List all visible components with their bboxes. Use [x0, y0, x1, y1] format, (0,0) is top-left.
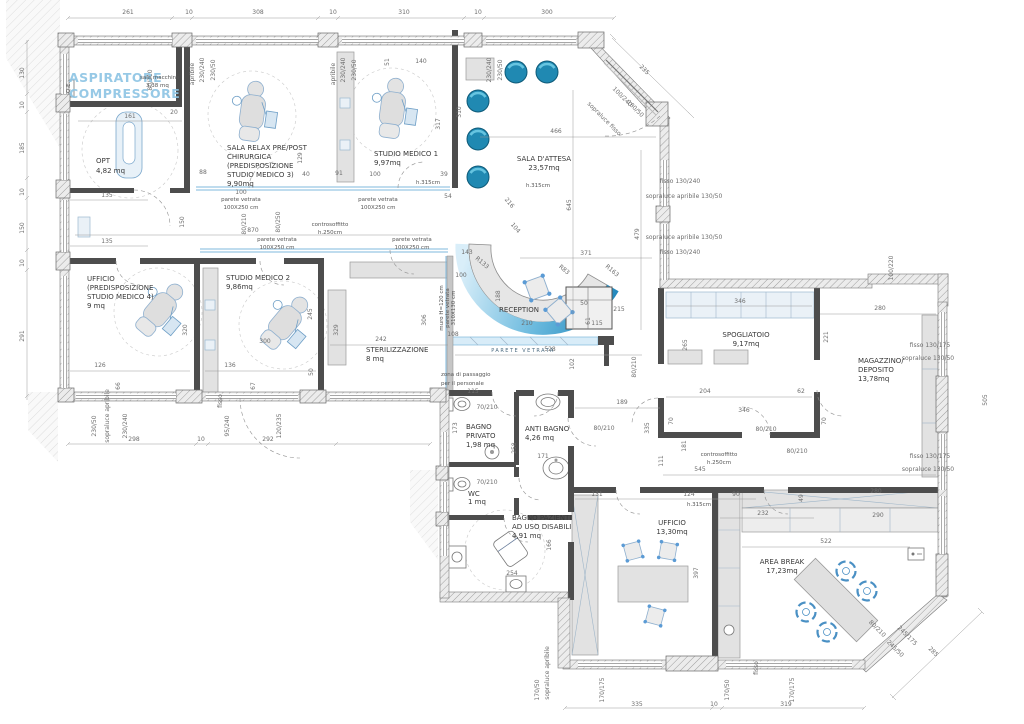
dim-label: 479 [634, 228, 641, 240]
waiting-chair [467, 90, 489, 112]
dim-label: 80/210 [786, 448, 807, 455]
room-label-ufficio2: UFFICIO [658, 519, 686, 527]
dim-label: 230/240 [199, 57, 206, 82]
room-area-sala-relax: 9,90mq [227, 180, 254, 188]
room-label-opt: OPT [96, 157, 111, 165]
height-note: h.315cm [526, 183, 550, 189]
dim-label: 397 [693, 567, 700, 579]
height-note: h.315cm [416, 180, 440, 186]
dim-label: 140 [415, 58, 427, 65]
dim-label: 70/210 [476, 404, 497, 411]
dim-label: 189 [616, 399, 628, 406]
room-area-spogliatoio: 9,17mq [733, 340, 760, 348]
room-area-area-break: 17,23mq [766, 567, 797, 575]
break-chair [818, 623, 837, 642]
room-label-sterilizzazione: STERILIZZAZIONE [366, 346, 428, 354]
dim-label: 221 [823, 331, 830, 343]
dim-label: 171 [537, 453, 549, 460]
dim-label: 290 [872, 512, 884, 519]
dim-label: 230/50 [351, 59, 358, 80]
dim-label: 50 [580, 300, 588, 307]
parete-vetrata-note: 100X250 cm [395, 245, 430, 251]
room-label-ufficio-predisp: UFFICIO [87, 275, 115, 283]
dim-label: 310 [456, 106, 463, 118]
dim-label: 49 [798, 494, 805, 502]
dim-label: 245 [307, 308, 314, 320]
floor-plan: 2611030810310103001301018510150102912981… [0, 0, 1024, 724]
dim-label: 10 [19, 188, 26, 196]
dim-label: 310 [398, 9, 410, 16]
dim-label: 108 [447, 331, 459, 338]
dim-label: 235 [638, 63, 651, 76]
dim-label: 242 [375, 336, 387, 343]
dim-label: sopraluce apribile [104, 389, 111, 443]
waiting-chair [505, 61, 527, 83]
room-label-sala-relax: SALA RELAX PRE/POST [227, 144, 308, 152]
room-label-area-break: AREA BREAK [760, 558, 805, 566]
dim-label: 10 [329, 9, 337, 16]
break-chair [797, 603, 816, 622]
bench [668, 350, 702, 364]
window [442, 432, 448, 556]
dim-label: 120/235 [276, 413, 283, 438]
dim-label: 80/250 [275, 211, 282, 232]
dim-label: sopraluce apribile 130/50 [646, 234, 723, 241]
room-area-anti-bagno: 4,26 mq [525, 434, 554, 442]
dim-label: 130 [19, 67, 26, 79]
room-area-bagno-pazienti: 4,91 mq [512, 532, 541, 540]
parete-vetrata-note: 100X250 cm [224, 205, 259, 211]
dim-label: fisso 130/175 [910, 342, 951, 349]
muro-note: 310X130 cm [451, 291, 457, 326]
dim-label: 170/50 [724, 679, 731, 700]
dim-label: 308 [252, 9, 264, 16]
dim-label: 298 [128, 436, 140, 443]
bathroom-fixtures [446, 394, 569, 592]
dim-label: 70 [668, 417, 675, 425]
room-label-anti-bagno: ANTI BAGNO [525, 425, 570, 433]
dim-label: 70 [821, 417, 828, 425]
room-label-magazzino: DEPOSITO [858, 366, 894, 374]
dim-label: 210 [521, 320, 533, 327]
dim-label: 10 [474, 9, 482, 16]
dim-label: 10 [19, 259, 26, 267]
office-table [618, 566, 688, 602]
dim-label: 870 [247, 227, 259, 234]
dim-label: 258 [511, 442, 518, 454]
room-area-bagno-privato: 1,98 mq [466, 441, 495, 449]
dim-label: 522 [820, 538, 832, 545]
dim-label: 80/210 [755, 426, 776, 433]
dim-label: 215 [613, 306, 625, 313]
dim-label: 505 [982, 394, 989, 406]
dim-label: 170/50 [534, 679, 541, 700]
dim-label: 80/210 [867, 619, 887, 639]
dim-label: 20 [170, 109, 178, 116]
dim-label: sopraluce 130/50 [902, 355, 954, 362]
dim-label: 50 [308, 368, 315, 376]
dim-label: 371 [580, 250, 592, 257]
room-area-wc: 1 mq [468, 498, 486, 506]
dim-label: 261 [122, 9, 134, 16]
room-label-studio2: STUDIO MEDICO 2 [226, 274, 290, 282]
room-area-opt: 4,82 mq [96, 167, 125, 175]
dim-label: 129 [297, 152, 304, 164]
dim-label: fisso 130/240 [660, 249, 701, 256]
dim-label: 10 [197, 436, 205, 443]
room-label-bagno-pazienti: AD USO DISABILI [512, 523, 571, 531]
dim-label: 317 [435, 118, 442, 130]
dim-label: 90 [732, 491, 740, 498]
room-label-studio1: STUDIO MEDICO 1 [374, 150, 438, 158]
dim-label: 54 [444, 193, 452, 200]
dim-label: 166 [546, 539, 553, 551]
dim-label: 230/50 [91, 415, 98, 436]
qe-label: Q.E. [66, 81, 72, 93]
height-note: h.315cm [687, 502, 711, 508]
bench [714, 350, 748, 364]
dim-label: fisso [217, 394, 224, 408]
cabinet [78, 217, 90, 237]
dim-label: 124 [683, 491, 695, 498]
waiting-chair [467, 166, 489, 188]
dim-label: 115 [591, 320, 603, 327]
dim-label: 170/175 [789, 677, 796, 702]
dim-label: fisso 130/175 [910, 453, 951, 460]
dim-label: 280 [870, 488, 882, 495]
dim-label: 66 [115, 382, 122, 390]
dim-label: 173 [452, 422, 459, 434]
dim-label: 67 [250, 382, 257, 390]
parete-vetrata-note: parete vetrata [358, 197, 398, 203]
locker-cabinets [666, 292, 814, 318]
dim-label: 95/240 [224, 415, 231, 436]
dim-label: 62 [797, 388, 805, 395]
dim-label: 10 [710, 701, 718, 708]
dim-label: 204 [699, 388, 711, 395]
room-area-studio2: 9,86mq [226, 283, 253, 291]
dim-label: 545 [694, 466, 706, 473]
room-label-reception: RECEPTION [499, 306, 539, 314]
dim-label: 335 [644, 422, 651, 434]
dim-label: 232 [757, 510, 769, 517]
controsoffitto-note: controsoffitto [312, 222, 349, 228]
break-chair [837, 562, 856, 581]
room-label-spogliatoio: SPOGLIATOIO [722, 331, 770, 339]
dim-label: 150 [19, 222, 26, 234]
room-label-sala-relax: STUDIO MEDICO 3) [227, 171, 294, 179]
waiting-chair [536, 61, 558, 83]
sala-macchine-sub: 3,38 mq [146, 83, 169, 89]
dim-label: 265 [682, 339, 689, 351]
dim-label: 40 [302, 171, 310, 178]
parete-vetrata-note: parete vetrata [257, 237, 297, 243]
dim-label: 100 [455, 272, 467, 279]
office-chair [657, 540, 680, 563]
dim-label: 346 [738, 407, 750, 414]
dim-label: 280 [874, 305, 886, 312]
dim-label: 135 [101, 192, 113, 199]
dim-label: 115 [467, 388, 479, 395]
dim-label: 216 [503, 196, 516, 209]
room-area-studio1: 9,97mq [374, 159, 401, 167]
parete-vetrata-note: parete vetrata [221, 197, 261, 203]
dim-label: sopraluce apribile 130/50 [646, 193, 723, 200]
dim-label: 285 [927, 645, 940, 658]
dim-label: 291 [19, 330, 26, 342]
dim-label: 230/240 [486, 57, 493, 82]
cabinet [203, 268, 218, 393]
dim-label: sopraluce 130/50 [902, 466, 954, 473]
dim-label: 300 [259, 338, 271, 345]
dental-chair [227, 78, 281, 144]
dim-label: 104 [509, 221, 522, 234]
dim-label: 100 [235, 189, 247, 196]
dim-label: 51 [384, 58, 391, 66]
dim-label: fisso [753, 661, 760, 675]
dim-label: 230/50 [210, 59, 217, 80]
dim-label: 230/50 [497, 59, 504, 80]
office-wardrobe [572, 495, 598, 655]
parete-vetrata-caps: PARETE VETRATA [491, 348, 555, 354]
dim-label: 80/210 [631, 356, 638, 377]
dim-label: sopraluce fisso [586, 101, 623, 138]
room-label-sala-attesa: SALA D'ATTESA [517, 155, 571, 163]
dim-label: 100/220 [888, 255, 895, 280]
room-area-magazzino: 13,78mq [858, 375, 889, 383]
parete-vetrata-note: 100X250 cm [260, 245, 295, 251]
room-label-sala-relax: CHIRURGICA [227, 153, 271, 161]
dim-label: 91 [335, 170, 343, 177]
room-area-ufficio-predisp: 9 mq [87, 302, 105, 310]
sala-macchine-sub: sala macchine [140, 75, 180, 81]
dim-label: 161 [124, 113, 136, 120]
room-label-wc: WC [468, 490, 480, 498]
dim-label: R163 [604, 263, 621, 279]
break-chair [858, 582, 877, 601]
office-chair [643, 604, 667, 628]
dim-label: 70/210 [476, 479, 497, 486]
dim-label: 136 [224, 362, 236, 369]
dim-label: R83 [557, 263, 571, 276]
dim-label: 254 [506, 570, 518, 577]
dim-label: 10 [19, 101, 26, 109]
room-label-sala-relax: (PREDISPOSIZIONE [227, 162, 293, 170]
waiting-chair [467, 128, 489, 150]
dim-label: 100 [369, 171, 381, 178]
dim-label: 10 [185, 9, 193, 16]
dim-label: 111 [658, 455, 665, 467]
room-area-sterilizzazione: 8 mq [366, 355, 384, 363]
dental-chair [367, 75, 421, 141]
dim-label: 230/240 [122, 413, 129, 438]
dim-label: 88 [199, 169, 207, 176]
parete-vetrata-note: parete vetrata [392, 237, 432, 243]
room-label-magazzino: MAGAZZINO/ [858, 357, 904, 365]
sterilization-bench [350, 262, 450, 278]
room-label-ufficio-predisp: STUDIO MEDICO 4) [87, 293, 154, 301]
zona-passaggio-note: per il personale [441, 381, 484, 387]
dim-label: fisso 130/240 [660, 178, 701, 185]
dim-label: 185 [19, 142, 26, 154]
dim-label: 320 [182, 324, 189, 336]
dim-label: 300 [541, 9, 553, 16]
dim-label: 329 [333, 324, 340, 336]
dim-label: 170/175 [599, 677, 606, 702]
controsoffitto-note: h.250cm [707, 460, 731, 466]
controsoffitto-note: h.250cm [318, 230, 342, 236]
dim-label: 466 [550, 128, 562, 135]
window [76, 394, 430, 400]
dim-label: 181 [681, 440, 688, 452]
dim-label: 80/210 [593, 425, 614, 432]
dim-label: 346 [734, 298, 746, 305]
room-label-bagno-privato: PRIVATO [466, 432, 496, 440]
zona-passaggio-note: zona di passaggio [441, 372, 491, 378]
parete-vetrata-note: 100X250 cm [361, 205, 396, 211]
room-label-ufficio-predisp: (PREDISPOSIZIONE [87, 284, 153, 292]
dim-label: 335 [631, 701, 643, 708]
room-area-sala-attesa: 23,57mq [528, 164, 559, 172]
dim-label: 188 [495, 290, 502, 302]
dim-label: 135 [101, 238, 113, 245]
dim-label: 306 [421, 314, 428, 326]
office-chair [621, 539, 645, 563]
dim-label: 126 [94, 362, 106, 369]
dim-label: 292 [262, 436, 274, 443]
dim-label: 131 [591, 491, 603, 498]
dim-label: apribile [189, 62, 196, 85]
dim-label: 102 [569, 358, 576, 370]
dim-label: apribile [330, 62, 337, 85]
dim-label: 150 [179, 216, 186, 228]
dim-label: sopraluce apribile [544, 646, 551, 700]
dim-label: 230/240 [340, 57, 347, 82]
dental-chair [250, 285, 324, 361]
room-label-bagno-pazienti: BAGNO PAZIENTI [512, 514, 571, 522]
room-label-bagno-privato: BAGNO [466, 423, 492, 431]
dim-label: 143 [461, 249, 473, 256]
dim-label: 645 [566, 199, 573, 211]
controsoffitto-note: controsoffitto [701, 452, 738, 458]
room-area-ufficio2: 13,30mq [656, 528, 687, 536]
dim-label: 39 [440, 171, 448, 178]
